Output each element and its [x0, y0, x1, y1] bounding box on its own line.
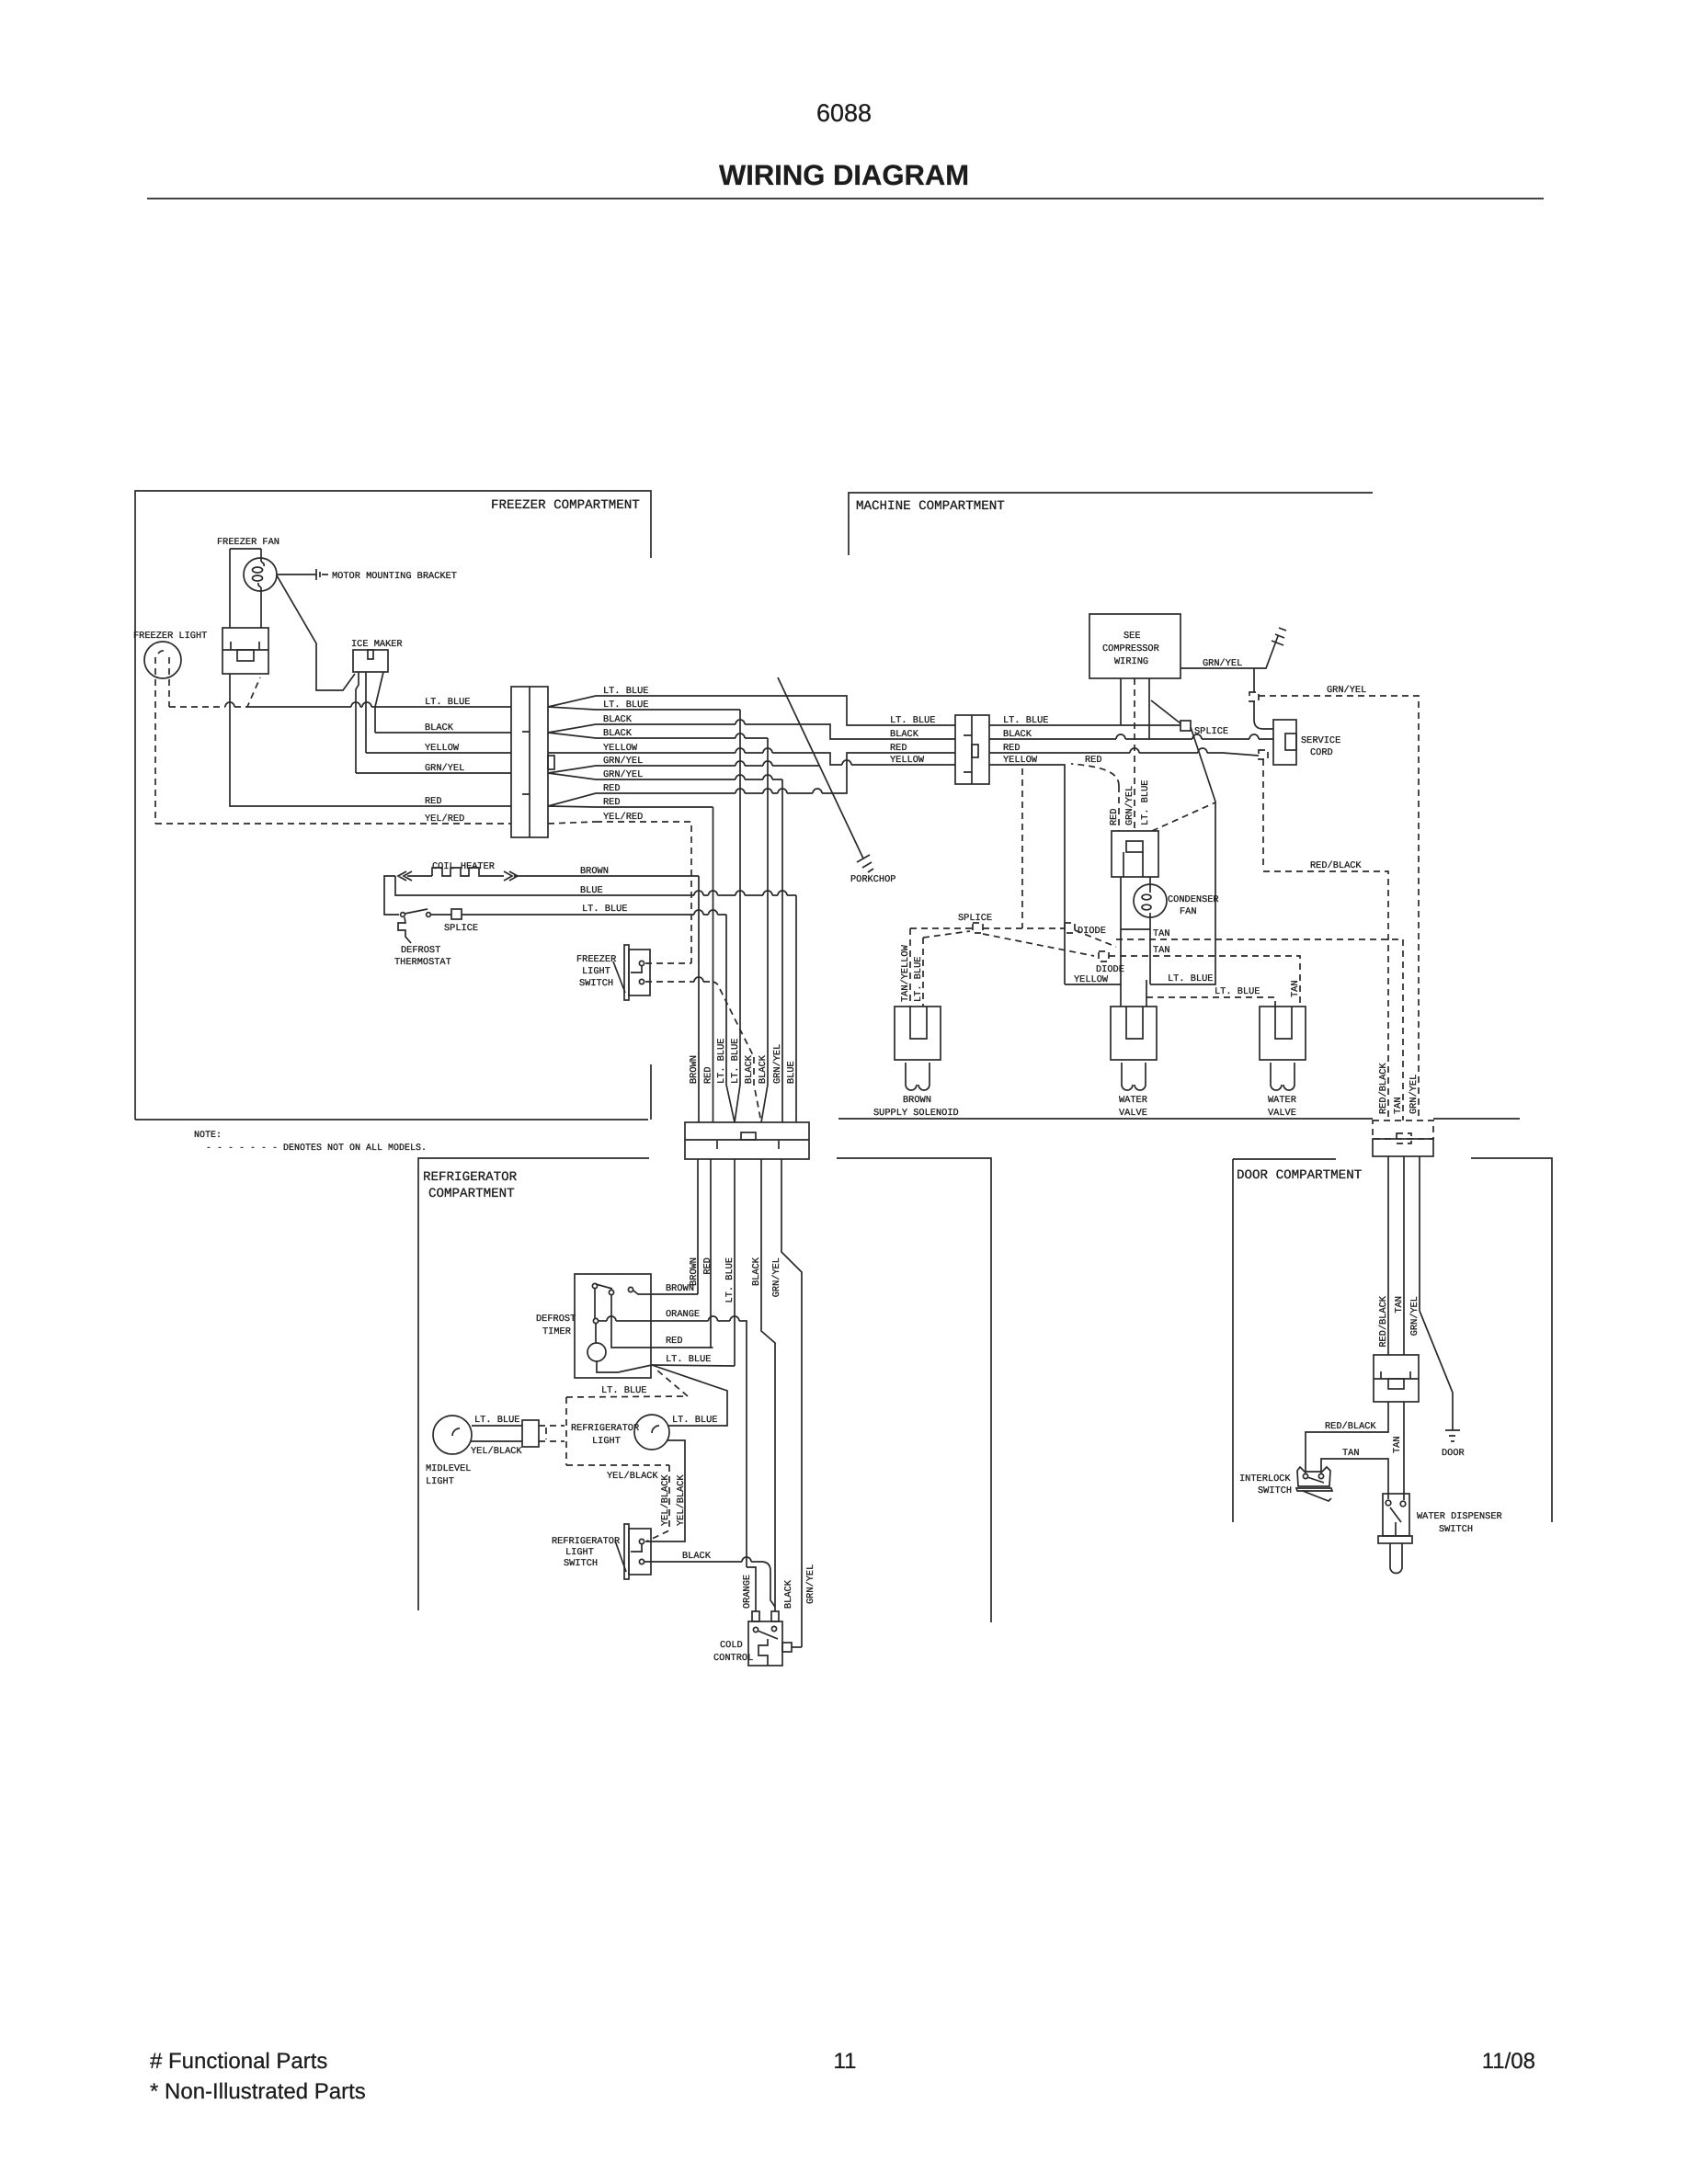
svg-text:GRN/YEL: GRN/YEL: [1327, 685, 1366, 696]
svg-text:LT. BLUE: LT. BLUE: [1215, 986, 1260, 997]
svg-text:COMPARTMENT: COMPARTMENT: [428, 1187, 515, 1201]
svg-text:WIRING: WIRING: [1114, 656, 1148, 667]
svg-text:SPLICE: SPLICE: [958, 913, 992, 924]
svg-text:DEFROST: DEFROST: [536, 1314, 576, 1325]
svg-text:YEL/BLACK: YEL/BLACK: [676, 1474, 687, 1526]
svg-text:LT. BLUE: LT. BLUE: [474, 1415, 519, 1426]
svg-text:VALVE: VALVE: [1119, 1108, 1147, 1119]
svg-text:RED: RED: [703, 1066, 714, 1084]
svg-text:LIGHT: LIGHT: [582, 966, 610, 977]
svg-text:DOOR COMPARTMENT: DOOR COMPARTMENT: [1237, 1168, 1362, 1183]
svg-text:11: 11: [834, 2049, 857, 2074]
svg-text:CONTROL: CONTROL: [713, 1653, 753, 1664]
svg-text:GRN/YEL: GRN/YEL: [1124, 786, 1135, 825]
svg-text:RED: RED: [666, 1336, 683, 1347]
svg-text:BROWN: BROWN: [580, 866, 609, 877]
svg-text:GRN/YEL: GRN/YEL: [1203, 658, 1242, 669]
svg-text:11/08: 11/08: [1482, 2049, 1535, 2074]
svg-text:NOTE:: NOTE:: [194, 1131, 222, 1141]
svg-text:CORD: CORD: [1310, 747, 1333, 758]
svg-text:WATER: WATER: [1268, 1095, 1296, 1106]
svg-text:YELLOW: YELLOW: [890, 755, 925, 766]
svg-text:GRN/YEL: GRN/YEL: [805, 1564, 816, 1604]
svg-text:INTERLOCK: INTERLOCK: [1239, 1473, 1291, 1484]
svg-text:TAN: TAN: [1290, 980, 1301, 997]
svg-text:LIGHT: LIGHT: [592, 1436, 621, 1447]
svg-text:BLACK: BLACK: [890, 729, 919, 740]
svg-text:LT. BLUE: LT. BLUE: [730, 1039, 741, 1084]
svg-text:BLACK: BLACK: [744, 1054, 755, 1084]
svg-text:ORANGE: ORANGE: [742, 1575, 753, 1609]
svg-text:DOOR: DOOR: [1442, 1448, 1465, 1459]
svg-text:BROWN: BROWN: [903, 1095, 931, 1106]
svg-text:MIDLEVEL: MIDLEVEL: [426, 1463, 471, 1474]
svg-text:LT. BLUE: LT. BLUE: [913, 957, 924, 1002]
svg-text:YEL/RED: YEL/RED: [425, 813, 464, 825]
svg-text:LT. BLUE: LT. BLUE: [724, 1257, 736, 1302]
svg-text:YELLOW: YELLOW: [1074, 974, 1109, 985]
svg-text:RED: RED: [702, 1257, 713, 1275]
svg-text:YEL/BLACK: YEL/BLACK: [660, 1474, 671, 1526]
svg-text:DEFROST: DEFROST: [401, 945, 440, 956]
svg-text:SWITCH: SWITCH: [1439, 1524, 1473, 1535]
svg-text:RED: RED: [425, 796, 442, 807]
svg-text:6088: 6088: [816, 99, 872, 127]
svg-text:SEE: SEE: [1123, 631, 1141, 642]
svg-text:BLACK: BLACK: [751, 1257, 762, 1286]
svg-text:TAN: TAN: [1153, 928, 1170, 939]
svg-text:FAN: FAN: [1180, 906, 1197, 917]
svg-text:YEL/BLACK: YEL/BLACK: [607, 1471, 658, 1482]
svg-text:LT. BLUE: LT. BLUE: [425, 697, 470, 708]
svg-text:RED/BLACK: RED/BLACK: [1378, 1295, 1389, 1347]
svg-text:GRN/YEL: GRN/YEL: [771, 1257, 782, 1297]
svg-text:MOTOR MOUNTING BRACKET: MOTOR MOUNTING BRACKET: [332, 571, 457, 582]
svg-text:SUPPLY SOLENOID: SUPPLY SOLENOID: [873, 1108, 959, 1119]
svg-text:# Functional Parts: # Functional Parts: [150, 2049, 327, 2074]
svg-text:FREEZER: FREEZER: [576, 954, 616, 965]
svg-text:TAN: TAN: [1342, 1448, 1360, 1459]
svg-text:WIRING DIAGRAM: WIRING DIAGRAM: [719, 159, 969, 191]
svg-text:TAN/YELLOW: TAN/YELLOW: [900, 944, 911, 1002]
svg-text:LT. BLUE: LT. BLUE: [582, 904, 627, 915]
svg-text:GRN/YEL: GRN/YEL: [425, 763, 464, 774]
svg-text:WATER: WATER: [1119, 1095, 1147, 1106]
svg-text:GRN/YEL: GRN/YEL: [772, 1044, 783, 1084]
svg-text:FREEZER LIGHT: FREEZER LIGHT: [133, 631, 207, 642]
svg-text:ICE MAKER: ICE MAKER: [351, 639, 403, 650]
svg-text:GRN/YEL: GRN/YEL: [1409, 1075, 1420, 1114]
svg-text:TAN: TAN: [1153, 945, 1170, 956]
svg-text:VALVE: VALVE: [1268, 1108, 1296, 1119]
svg-text:CONDENSER: CONDENSER: [1168, 894, 1219, 905]
svg-text:COMPRESSOR: COMPRESSOR: [1102, 643, 1159, 654]
svg-text:MACHINE COMPARTMENT: MACHINE COMPARTMENT: [856, 499, 1005, 514]
svg-text:BLUE: BLUE: [786, 1061, 797, 1084]
svg-text:LT. BLUE: LT. BLUE: [672, 1415, 717, 1426]
svg-text:RED/BLACK: RED/BLACK: [1378, 1063, 1389, 1114]
svg-text:SPLICE: SPLICE: [444, 923, 478, 934]
svg-text:WATER DISPENSER: WATER DISPENSER: [1417, 1511, 1502, 1522]
svg-text:LT. BLUE: LT. BLUE: [716, 1039, 727, 1084]
svg-text:BLACK: BLACK: [783, 1579, 794, 1609]
svg-text:DIODE: DIODE: [1078, 926, 1106, 937]
svg-text:REFRIGERATOR: REFRIGERATOR: [571, 1423, 639, 1434]
svg-text:BROWN: BROWN: [689, 1257, 700, 1286]
svg-text:- - - - - - - DENOTES NOT ON A: - - - - - - - DENOTES NOT ON ALL MODELS.: [206, 1143, 427, 1154]
svg-text:ORANGE: ORANGE: [666, 1309, 700, 1320]
svg-text:SERVICE: SERVICE: [1301, 735, 1340, 746]
svg-text:GRN/YEL: GRN/YEL: [1409, 1296, 1420, 1336]
svg-text:LT. BLUE: LT. BLUE: [601, 1385, 646, 1396]
svg-text:FREEZER FAN: FREEZER FAN: [217, 537, 279, 548]
svg-text:YELLOW: YELLOW: [425, 743, 460, 754]
svg-text:PORKCHOP: PORKCHOP: [850, 874, 895, 885]
svg-text:BLACK: BLACK: [425, 722, 454, 734]
svg-text:BROWN: BROWN: [689, 1055, 700, 1084]
svg-text:SWITCH: SWITCH: [579, 978, 613, 989]
svg-text:BROWN: BROWN: [666, 1283, 694, 1294]
svg-text:FREEZER COMPARTMENT: FREEZER COMPARTMENT: [491, 498, 640, 513]
svg-text:LIGHT: LIGHT: [565, 1547, 594, 1558]
svg-text:COLD: COLD: [720, 1640, 743, 1651]
svg-text:SWITCH: SWITCH: [564, 1558, 598, 1569]
svg-text:REFRIGERATOR: REFRIGERATOR: [423, 1170, 518, 1185]
svg-text:TAN: TAN: [1392, 1436, 1403, 1453]
svg-text:* Non-Illustrated Parts: * Non-Illustrated Parts: [150, 2079, 366, 2104]
svg-text:LIGHT: LIGHT: [426, 1476, 454, 1487]
svg-text:BLUE: BLUE: [580, 885, 603, 896]
svg-text:RED: RED: [890, 743, 907, 754]
svg-text:RED/BLACK: RED/BLACK: [1325, 1421, 1376, 1432]
svg-text:RED: RED: [1109, 808, 1120, 825]
svg-text:LT. BLUE: LT. BLUE: [1140, 780, 1151, 825]
svg-text:TIMER: TIMER: [542, 1326, 571, 1337]
svg-text:SWITCH: SWITCH: [1258, 1485, 1292, 1496]
svg-text:LT. BLUE: LT. BLUE: [666, 1354, 711, 1365]
svg-text:THERMOSTAT: THERMOSTAT: [394, 957, 451, 968]
svg-text:BLACK: BLACK: [758, 1054, 769, 1084]
svg-text:LT. BLUE: LT. BLUE: [890, 715, 935, 726]
svg-text:REFRIGERATOR: REFRIGERATOR: [552, 1536, 620, 1547]
svg-text:RED/BLACK: RED/BLACK: [1310, 860, 1362, 871]
svg-text:TAN: TAN: [1394, 1296, 1405, 1314]
svg-text:TAN: TAN: [1393, 1097, 1404, 1114]
svg-text:YEL/BLACK: YEL/BLACK: [471, 1446, 522, 1457]
svg-text:RED: RED: [1085, 755, 1102, 766]
svg-text:BLACK: BLACK: [682, 1551, 712, 1562]
svg-text:LT. BLUE: LT. BLUE: [1168, 973, 1213, 984]
